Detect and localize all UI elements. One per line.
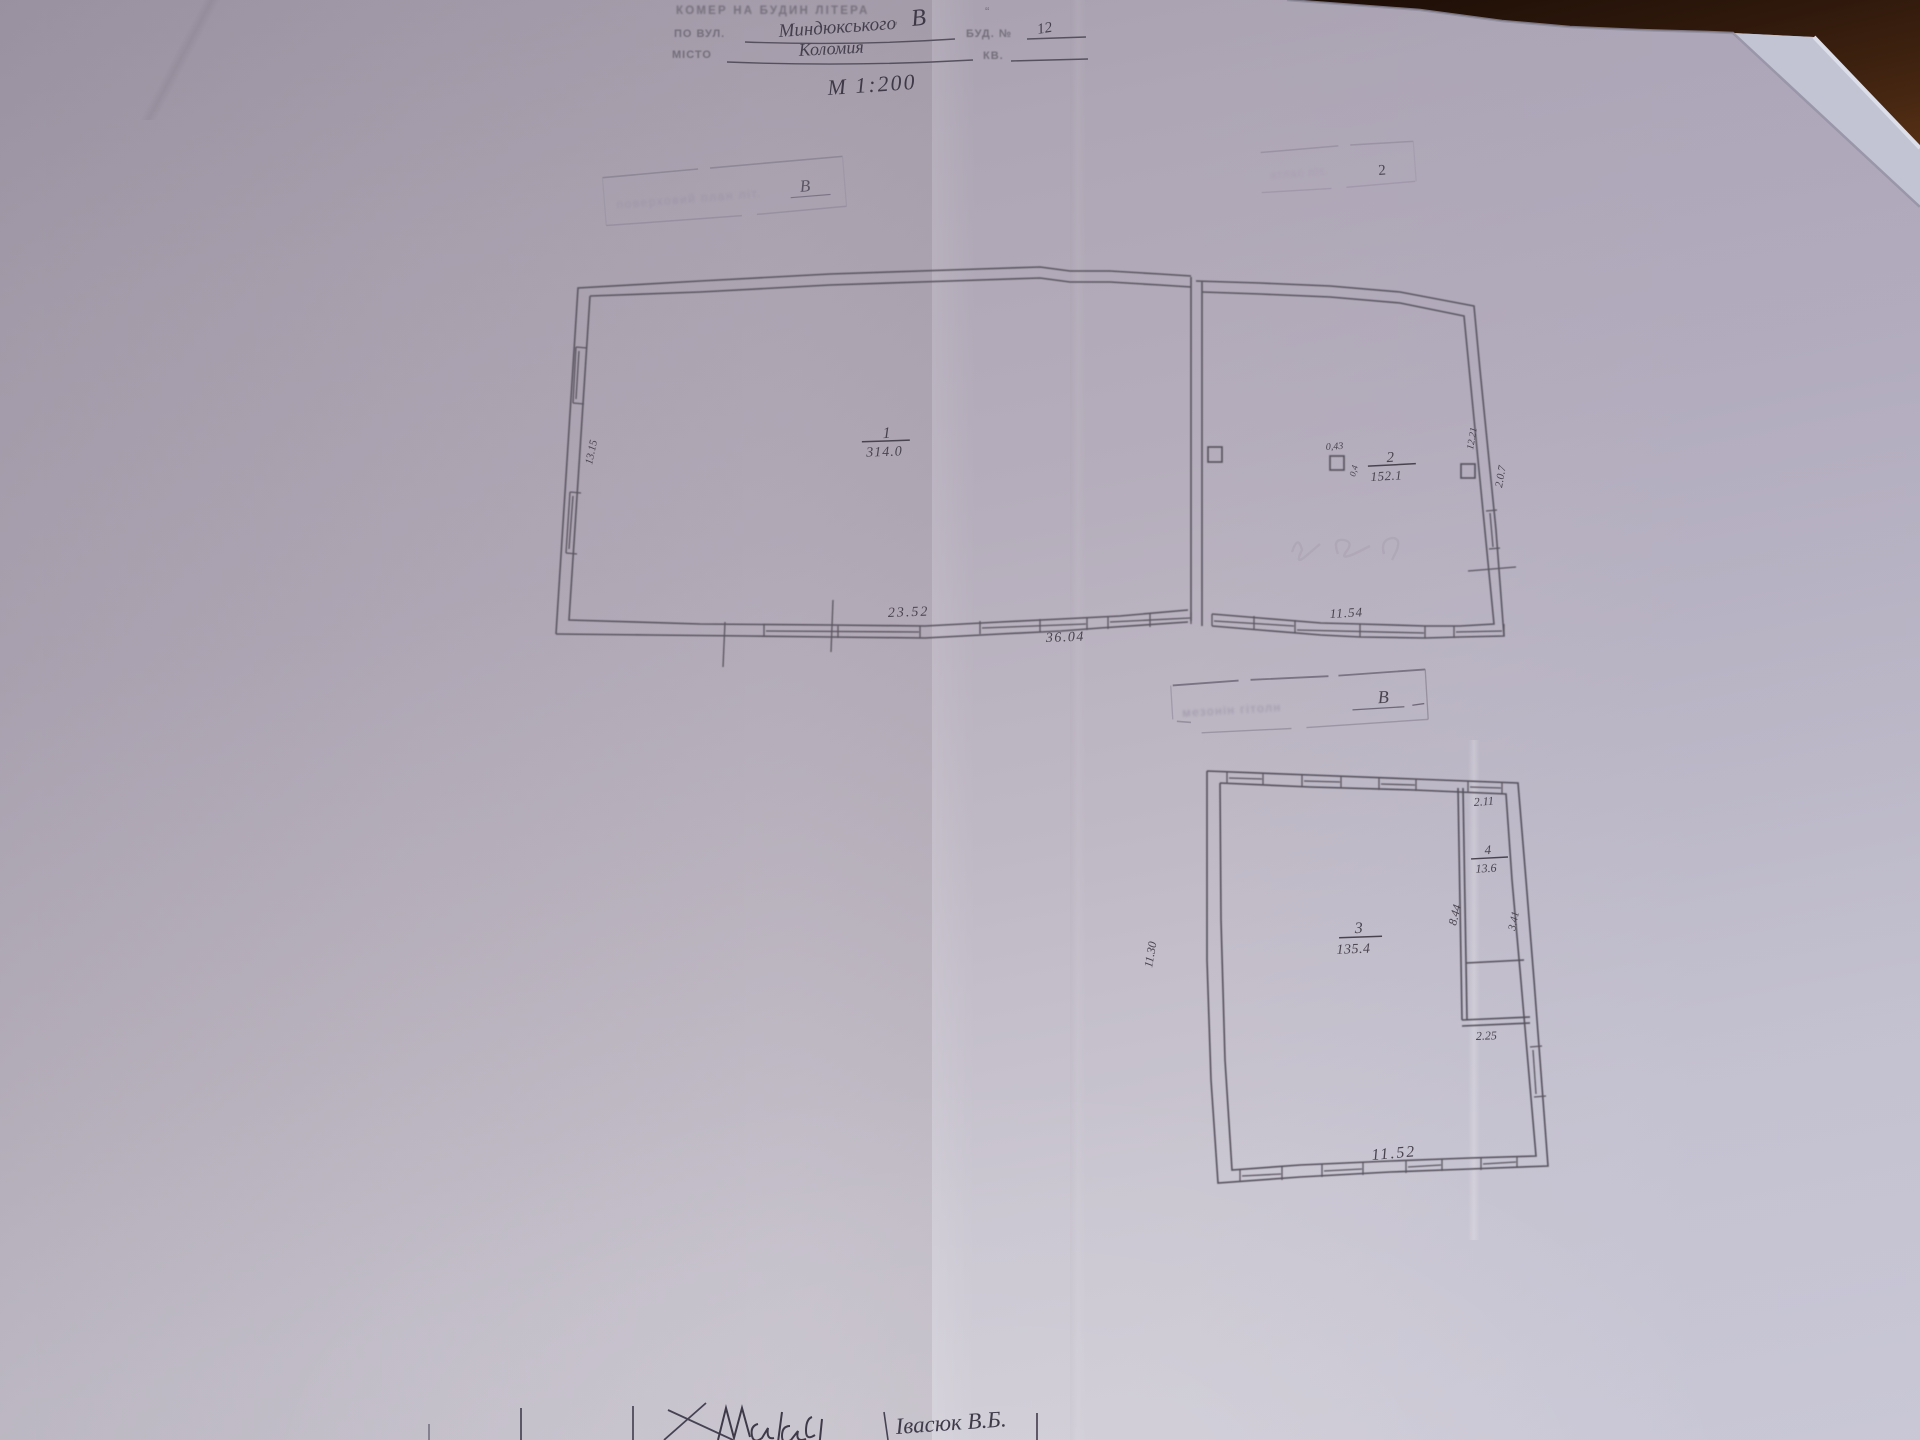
- svg-text:ПО ВУЛ.: ПО ВУЛ.: [674, 28, 725, 40]
- svg-text:КВ.: КВ.: [983, 50, 1004, 62]
- svg-text:В: В: [910, 5, 928, 32]
- svg-text:11.52: 11.52: [1371, 1143, 1417, 1164]
- svg-text:М 1:200: М 1:200: [826, 69, 918, 100]
- svg-text:12: 12: [1036, 19, 1054, 37]
- svg-text:2.25: 2.25: [1476, 1028, 1497, 1043]
- svg-text:БУД. №: БУД. №: [966, 28, 1012, 40]
- svg-text:1: 1: [882, 425, 891, 442]
- svg-text:КОМЕР НА БУДИН ЛІТЕРА: КОМЕР НА БУДИН ЛІТЕРА: [676, 5, 870, 17]
- svg-text:8.44: 8.44: [1445, 903, 1464, 927]
- svg-text:мезонін гітолн: мезонін гітолн: [1182, 700, 1282, 720]
- svg-text:Коломия: Коломия: [797, 37, 864, 60]
- svg-text:В: В: [799, 176, 811, 196]
- svg-text:3.41: 3.41: [1506, 910, 1522, 932]
- svg-text:В: В: [1377, 687, 1389, 708]
- svg-text:2.0.7: 2.0.7: [1493, 464, 1509, 488]
- svg-text:13.15: 13.15: [583, 438, 600, 465]
- svg-text:13.6: 13.6: [1475, 861, 1497, 876]
- svg-text:“: “: [985, 4, 989, 19]
- svg-text:12.21: 12.21: [1465, 426, 1480, 450]
- svg-text:поверховий план літ.: поверховий план літ.: [616, 186, 762, 212]
- svg-text:0,4: 0,4: [1347, 464, 1360, 478]
- svg-text:2: 2: [1386, 450, 1395, 466]
- svg-text:36.04: 36.04: [1045, 630, 1085, 646]
- svg-text:0,43: 0,43: [1325, 441, 1343, 453]
- svg-text:2: 2: [1378, 162, 1387, 179]
- svg-text:314.0: 314.0: [865, 444, 903, 460]
- svg-text:11.30: 11.30: [1141, 940, 1159, 968]
- svg-text:3: 3: [1353, 920, 1363, 937]
- svg-text:11.54: 11.54: [1329, 604, 1363, 621]
- svg-text:Івасюк В.Б.: Івасюк В.Б.: [894, 1406, 1008, 1439]
- svg-text:23.52: 23.52: [888, 605, 930, 621]
- svg-text:МІСТО: МІСТО: [672, 49, 712, 61]
- svg-text:2.11: 2.11: [1473, 794, 1494, 809]
- svg-text:152.1: 152.1: [1370, 467, 1402, 484]
- svg-text:135.4: 135.4: [1336, 942, 1371, 958]
- svg-text:атлас літ.: атлас літ.: [1270, 166, 1328, 182]
- svg-text:4: 4: [1484, 842, 1492, 857]
